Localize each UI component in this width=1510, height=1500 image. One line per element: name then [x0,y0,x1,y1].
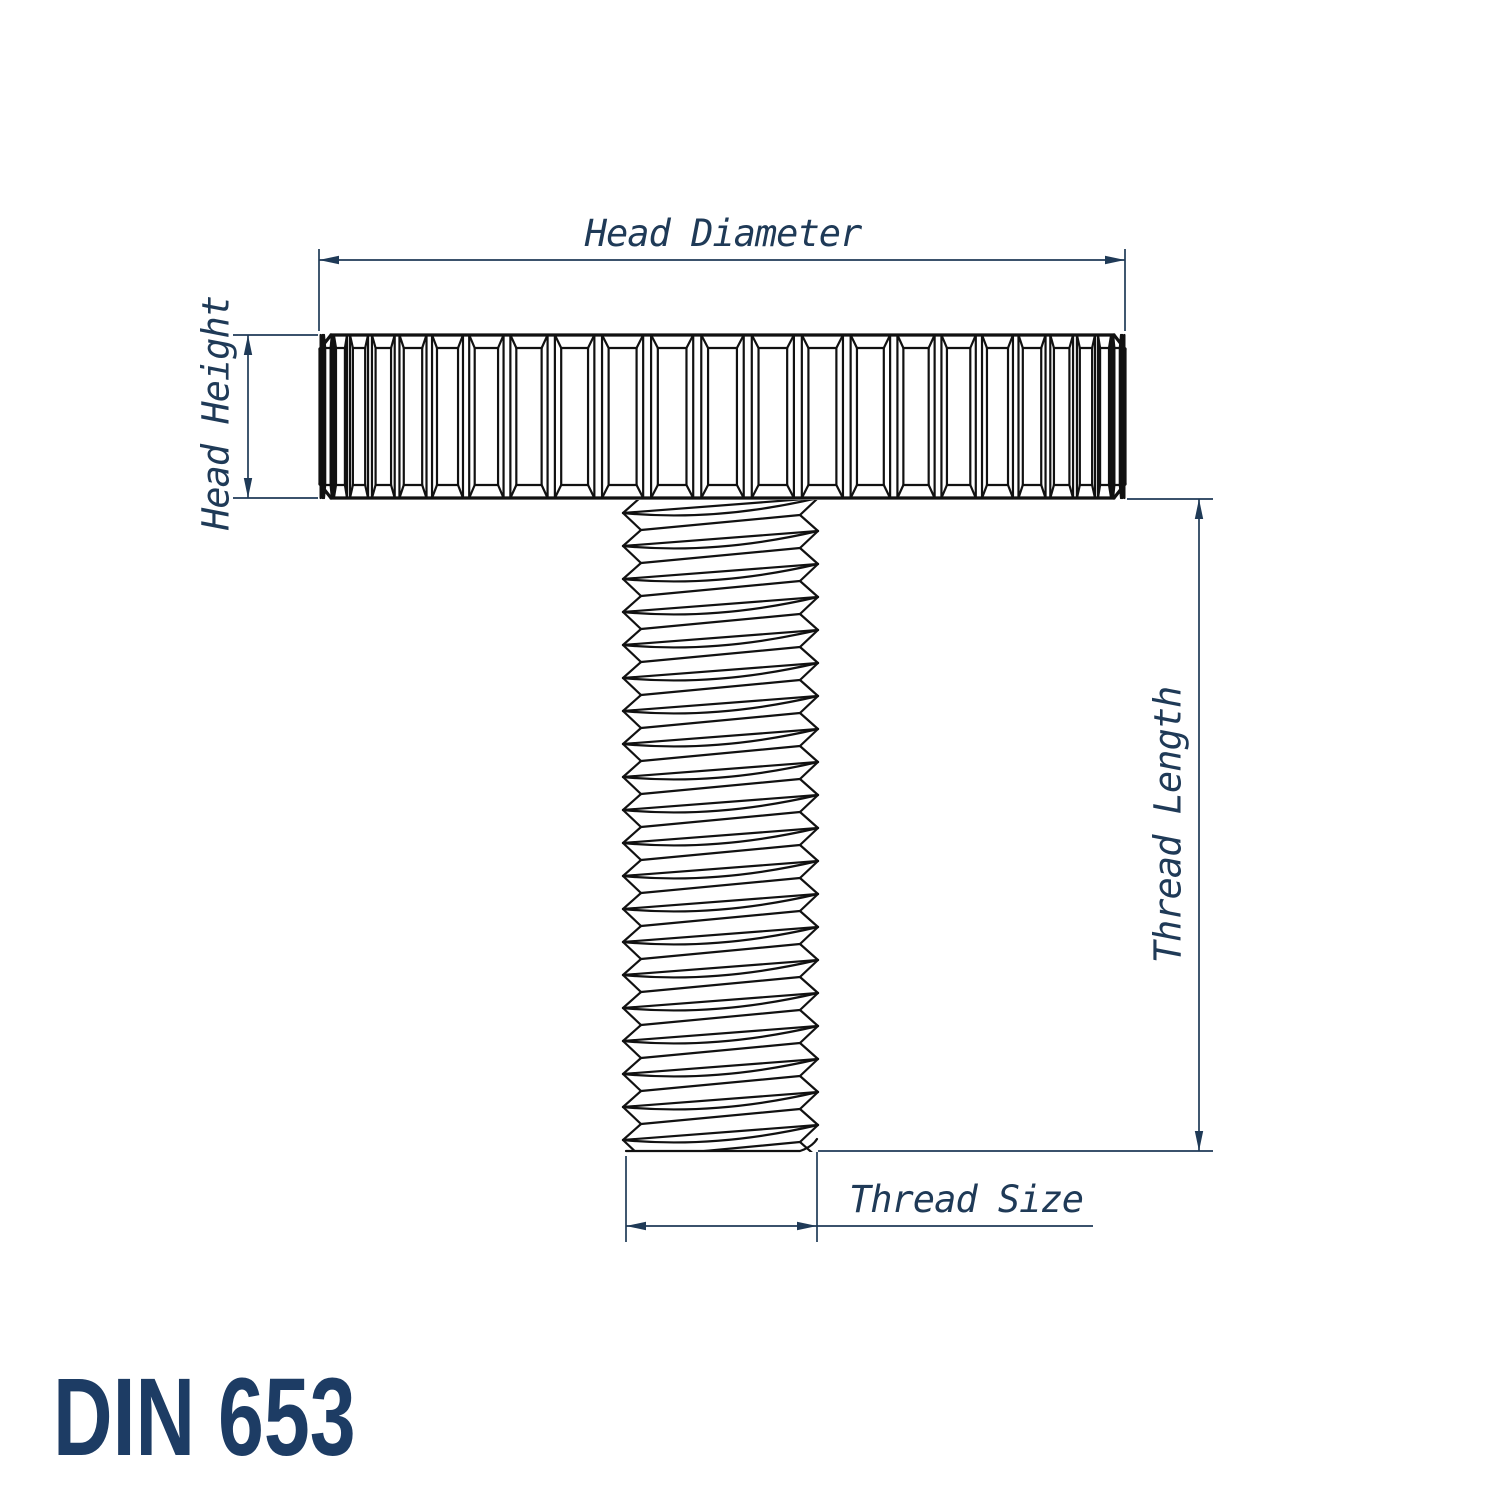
technical-drawing-canvas: Head Diameter Head Height Thread Length … [0,0,1510,1500]
head-diameter-label: Head Diameter [584,212,863,255]
head-diameter-dimension [319,249,1125,331]
threaded-shaft [623,465,818,1206]
thread-length-label: Thread Length [1147,687,1190,964]
head-height-label: Head Height [195,296,238,531]
thread-size-label: Thread Size [849,1178,1083,1221]
head-height-dimension [233,335,318,498]
standard-title: DIN 653 [53,1363,356,1473]
din-653-thumb-screw-drawing: Head Diameter Head Height Thread Length … [0,0,1510,1500]
knurled-head [320,335,1125,498]
